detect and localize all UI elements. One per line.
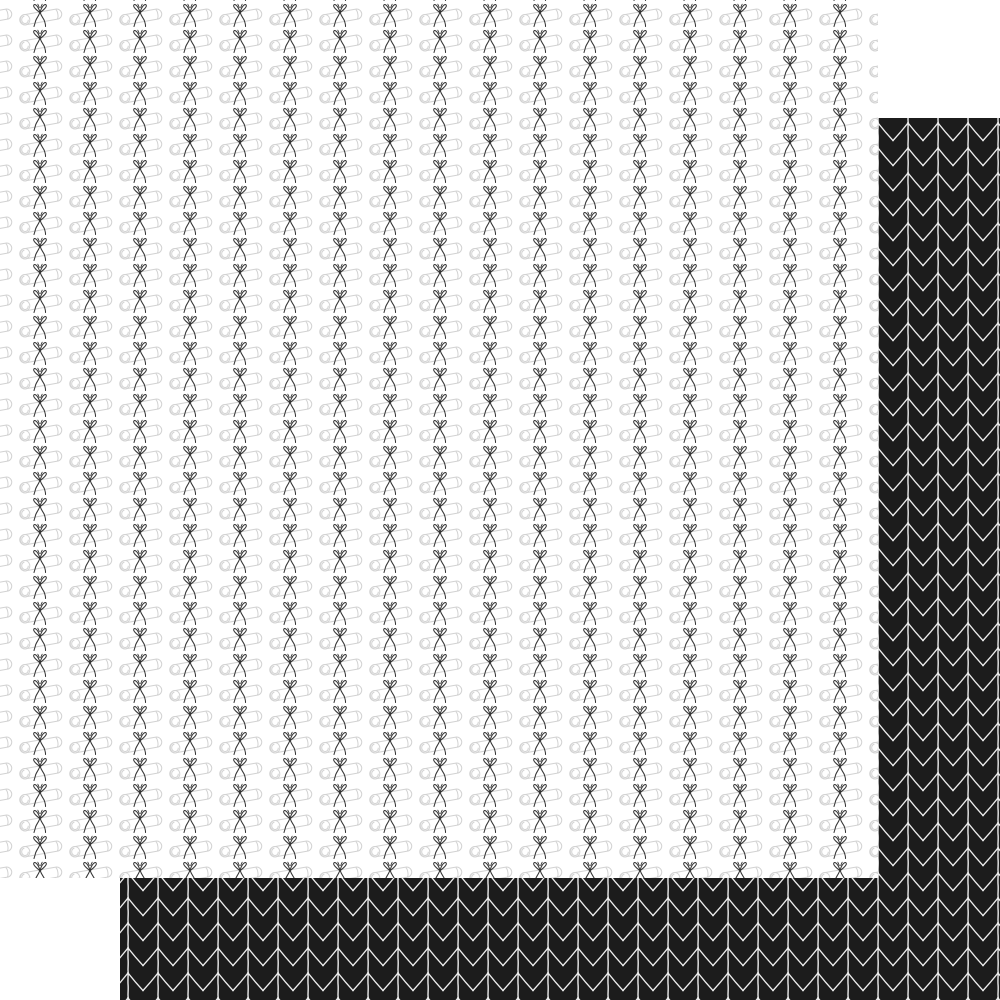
front-sheet-white-scroll-paper: [0, 0, 878, 878]
paper-swatch-product-image: [0, 0, 1000, 1000]
paper-swatch-canvas: [0, 0, 1000, 1000]
front-sheet-pattern-overlay: [0, 0, 878, 878]
